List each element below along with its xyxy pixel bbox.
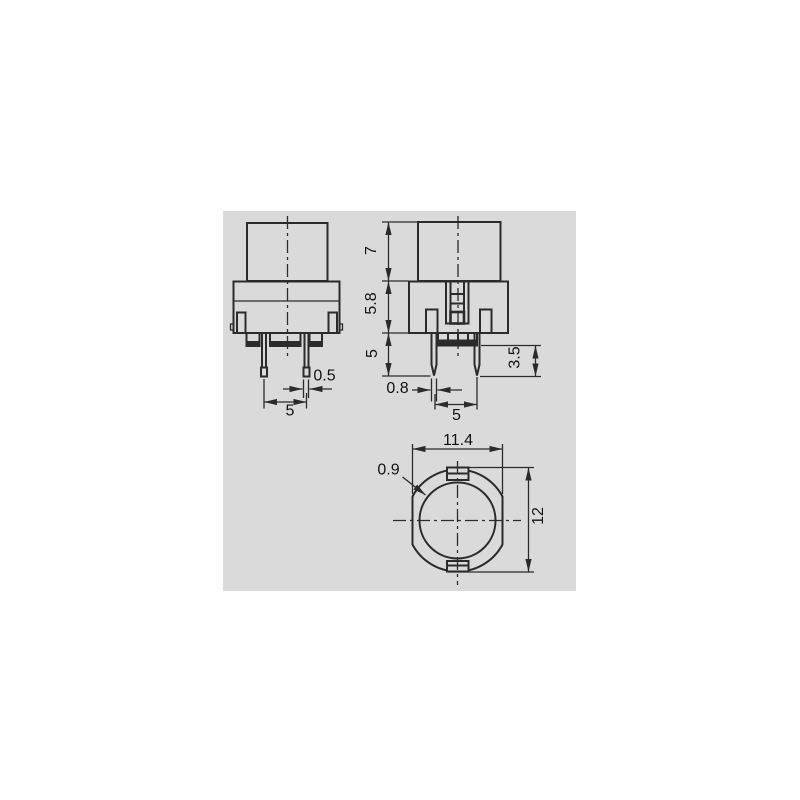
dim-front-pin-spacing-value: 5	[286, 403, 295, 420]
dim-side-body-height-value: 5.8	[363, 292, 380, 314]
dim-side-pin-tip-length-value: 3.5	[507, 346, 524, 368]
front-foot-left-shadow	[248, 341, 259, 346]
dim-front-pin-width-value: 0.5	[313, 368, 335, 385]
dim-bottom-diameter-value: 12	[530, 507, 547, 525]
front-foot-center-shadow	[271, 341, 300, 346]
drawing-canvas: 0.5 5	[0, 0, 800, 800]
front-foot-right-shadow	[311, 341, 322, 346]
dim-side-pin-width-value: 0.8	[386, 380, 408, 397]
dim-bottom-rim-width-value: 0.9	[377, 462, 399, 479]
dim-side-pin-length-value: 5	[364, 349, 381, 358]
drawing-panel	[223, 211, 576, 591]
dim-side-pin-spacing-value: 5	[452, 407, 461, 424]
dim-bottom-width-value: 11.4	[443, 432, 473, 449]
dim-side-cap-height-value: 7	[363, 246, 380, 255]
